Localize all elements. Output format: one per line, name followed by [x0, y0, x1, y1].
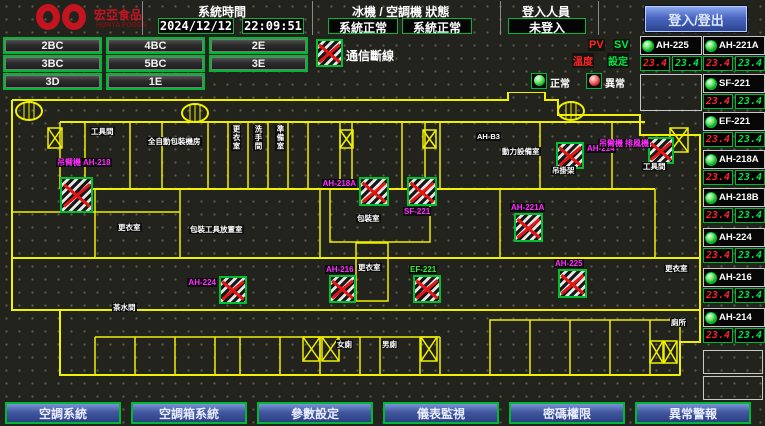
pv-header: PV	[588, 39, 605, 51]
status-led	[705, 312, 717, 324]
empty-readout-box	[640, 74, 702, 111]
login-user-display: 未登入	[508, 18, 586, 34]
sv-value: 23.4	[672, 56, 702, 71]
comm-loss-legend-label: 通信斷線	[346, 47, 394, 64]
equip-unit-AH-224[interactable]: AH-22423.423.4	[703, 228, 765, 263]
hvac-hmi-screen: 吊臂機AH-218AH-218ASF-221AH-214吊臂機排風機AH-221…	[0, 0, 765, 426]
room-label: 更衣室	[357, 263, 382, 272]
floor-button-3e[interactable]: 3E	[209, 55, 308, 72]
nav-button-ahu-system[interactable]: 空調箱系統	[131, 402, 247, 424]
status-led	[705, 272, 717, 284]
map-equip-label-crane: 吊臂機排風機	[598, 139, 646, 148]
nav-button-param-set[interactable]: 參數設定	[257, 402, 373, 424]
sv-name-header: 設定	[607, 53, 629, 68]
status-led	[705, 192, 717, 204]
ahu-status: 系統正常	[402, 18, 472, 34]
equip-id: AH-216	[719, 272, 752, 283]
sv-header: SV	[613, 39, 630, 51]
room-label: 動力設備室	[501, 147, 541, 156]
equip-id: AH-214	[719, 312, 752, 323]
equip-unit-SF-221[interactable]: SF-22123.423.4	[703, 74, 765, 109]
status-led	[705, 40, 717, 52]
equip-id: AH-221A	[719, 40, 759, 51]
map-equip-label-SF-221: SF-221	[403, 207, 431, 216]
logo-name: 宏亞食品	[94, 6, 142, 23]
room-label: 洗手間	[253, 125, 263, 151]
floor-button-3d[interactable]: 3D	[3, 73, 102, 90]
pv-name-header: 溫度	[572, 53, 594, 68]
equip-id: AH-218B	[719, 192, 759, 203]
map-equip-label-EF-221: EF-221	[409, 265, 437, 274]
sv-value: 23.4	[735, 56, 765, 71]
comm-loss-marker-AH-221A[interactable]	[514, 213, 543, 242]
logo-icon	[36, 4, 60, 30]
comm-loss-legend-icon	[316, 39, 343, 67]
equip-id: EF-221	[719, 116, 750, 127]
room-label: 女廁	[336, 340, 353, 349]
nav-button-meter-watch[interactable]: 儀表監視	[383, 402, 499, 424]
sv-value: 23.4	[735, 208, 765, 223]
map-overlay: 吊臂機AH-218AH-218ASF-221AH-214吊臂機排風機AH-221…	[0, 92, 765, 402]
comm-loss-marker-AH-218A[interactable]	[359, 177, 389, 206]
map-equip-label-AH-224: AH-224	[169, 278, 217, 287]
pv-value: 23.4	[703, 328, 733, 343]
floor-button-5bc[interactable]: 5BC	[106, 55, 205, 72]
comm-loss-marker-SF-221[interactable]	[407, 177, 437, 206]
abnormal-legend-label: 異常	[605, 75, 625, 90]
map-equip-label-AH-221A: AH-221A	[510, 203, 545, 212]
normal-legend-label: 正常	[550, 75, 570, 90]
room-label: 吊掛架	[551, 166, 576, 175]
equip-unit-AH-216[interactable]: AH-21623.423.4	[703, 268, 765, 303]
sv-value: 23.4	[735, 248, 765, 263]
floor-button-3bc[interactable]: 3BC	[3, 55, 102, 72]
pv-value: 23.4	[703, 132, 733, 147]
room-label: 工具間	[90, 127, 115, 136]
status-led	[705, 154, 717, 166]
comm-loss-marker-EF-221[interactable]	[413, 275, 441, 303]
room-label: 男廁	[381, 340, 398, 349]
status-led	[705, 232, 717, 244]
sv-value: 23.4	[735, 170, 765, 185]
equip-unit-EF-221[interactable]: EF-22123.423.4	[703, 112, 765, 147]
pv-value: 23.4	[640, 56, 670, 71]
normal-led-icon	[531, 73, 547, 89]
header-divider	[598, 1, 599, 35]
equip-unit-AH-225[interactable]: AH-22523.423.4	[640, 36, 702, 71]
map-equip-label-AH-225: AH-225	[554, 259, 584, 268]
equip-id: AH-224	[719, 232, 752, 243]
map-equip-label-AH-216: AH-216	[325, 265, 355, 274]
equip-unit-AH-214[interactable]: AH-21423.423.4	[703, 308, 765, 343]
room-label: 茶水間	[112, 303, 137, 312]
header-divider	[142, 1, 143, 35]
system-date-display: 2024/12/12	[158, 18, 234, 34]
equip-unit-AH-221A[interactable]: AH-221A23.423.4	[703, 36, 765, 71]
empty-readout-box	[703, 376, 763, 400]
nav-button-alarm[interactable]: 異常警報	[635, 402, 751, 424]
pv-value: 23.4	[703, 208, 733, 223]
floor-button-4bc[interactable]: 4BC	[106, 37, 205, 54]
nav-button-ac-system[interactable]: 空調系統	[5, 402, 121, 424]
status-led	[705, 116, 717, 128]
pv-value: 23.4	[703, 288, 733, 303]
room-label: 準備室	[275, 125, 285, 151]
sv-value: 23.4	[735, 94, 765, 109]
system-time-display: 22:09:51	[242, 18, 304, 34]
pv-value: 23.4	[703, 248, 733, 263]
comm-loss-marker-AH-218[interactable]	[60, 177, 93, 213]
equip-unit-AH-218B[interactable]: AH-218B23.423.4	[703, 188, 765, 223]
map-equip-label-AH-218A: AH-218A	[309, 179, 357, 188]
sv-value: 23.4	[735, 288, 765, 303]
header-divider	[312, 1, 313, 35]
status-led	[642, 40, 654, 52]
room-label: 包裝工具放置室	[189, 225, 244, 234]
room-label: 全自動包裝機房	[147, 137, 202, 146]
status-led	[705, 78, 717, 90]
floor-button-2bc[interactable]: 2BC	[3, 37, 102, 54]
pv-value: 23.4	[703, 94, 733, 109]
logo-icon	[62, 4, 86, 30]
map-equip-label-AH-218: 吊臂機AH-218	[56, 158, 112, 167]
logo-subname: HUNYA FOODS	[96, 22, 147, 29]
floor-button-2e[interactable]: 2E	[209, 37, 308, 54]
equip-unit-AH-218A[interactable]: AH-218A23.423.4	[703, 150, 765, 185]
room-label: 工具間	[642, 162, 667, 171]
room-label: 更衣室	[117, 223, 142, 232]
floor-button-1e[interactable]: 1E	[106, 73, 205, 90]
sv-value: 23.4	[735, 132, 765, 147]
room-label: 更衣室	[231, 125, 241, 151]
sv-value: 23.4	[735, 328, 765, 343]
comm-loss-marker-AH-224[interactable]	[219, 276, 247, 304]
room-label: 包裝室	[356, 214, 381, 223]
comm-loss-marker-AH-214[interactable]	[556, 142, 584, 169]
comm-loss-marker-crane[interactable]	[648, 137, 674, 164]
equip-id: AH-218A	[719, 154, 759, 165]
comm-loss-marker-AH-216[interactable]	[329, 275, 356, 303]
login-logout-button[interactable]: 登入/登出	[645, 6, 747, 32]
room-label: AH-B3	[476, 132, 501, 141]
comm-loss-marker-AH-225[interactable]	[558, 269, 587, 298]
header-divider	[500, 1, 501, 35]
room-label: 廁所	[670, 318, 687, 327]
pv-value: 23.4	[703, 170, 733, 185]
abnormal-led-icon	[586, 73, 602, 89]
chiller-status: 系統正常	[328, 18, 398, 34]
empty-readout-box	[703, 350, 763, 374]
nav-button-password[interactable]: 密碼權限	[509, 402, 625, 424]
room-label: 更衣室	[664, 264, 689, 273]
equip-id: AH-225	[656, 40, 689, 51]
equip-id: SF-221	[719, 78, 750, 89]
pv-value: 23.4	[703, 56, 733, 71]
